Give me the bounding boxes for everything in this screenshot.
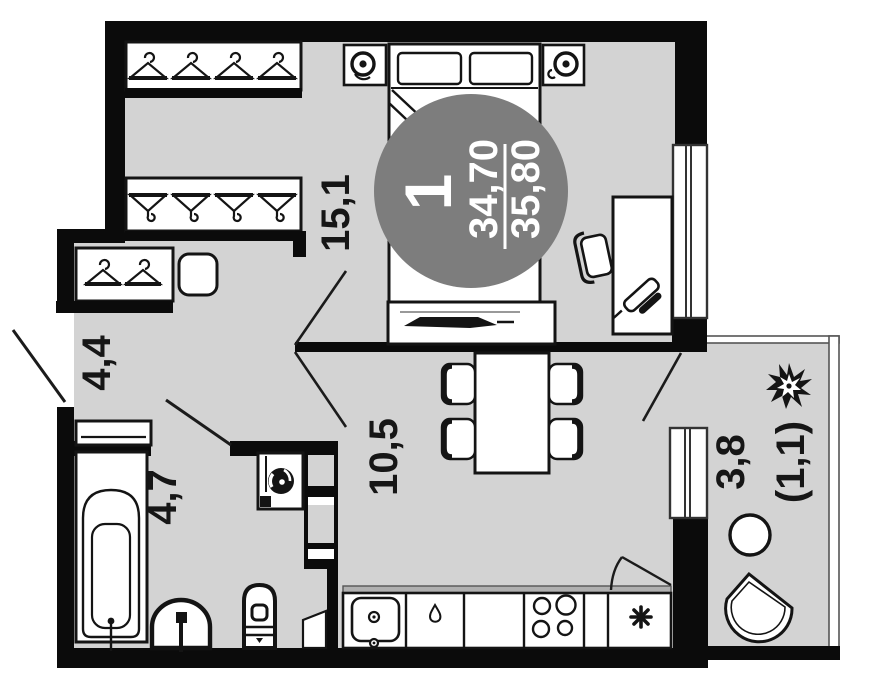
svg-text:35,80: 35,80	[504, 139, 548, 239]
svg-text:4,4: 4,4	[75, 334, 119, 390]
svg-text:34,70: 34,70	[462, 139, 506, 239]
svg-text:3,8: 3,8	[709, 434, 753, 490]
svg-text:1: 1	[391, 174, 465, 211]
svg-text:15,1: 15,1	[314, 174, 358, 252]
svg-text:(1,1): (1,1)	[769, 421, 813, 503]
svg-text:4,7: 4,7	[141, 469, 185, 525]
svg-text:10,5: 10,5	[362, 418, 406, 496]
